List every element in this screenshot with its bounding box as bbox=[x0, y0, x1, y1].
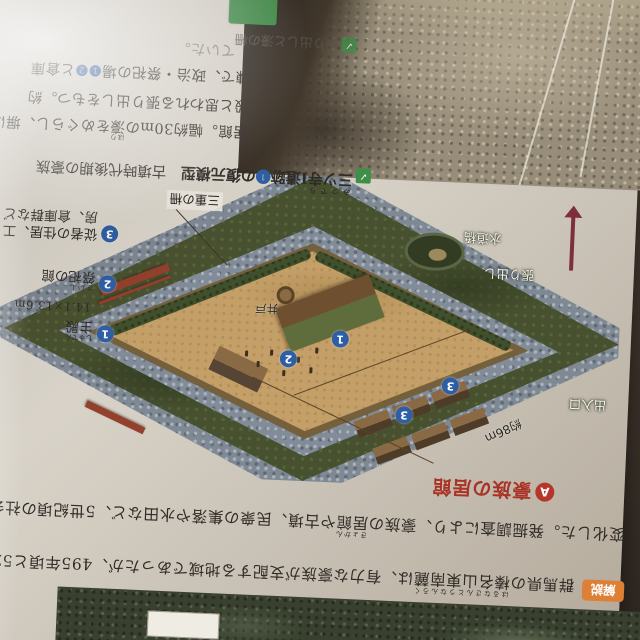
figure-marker-icon: ✓ bbox=[341, 37, 357, 53]
excavation-photo bbox=[238, 0, 640, 191]
legend-label-3: 従者の住居、工房、倉庫群など bbox=[0, 203, 98, 242]
fence-label: 三重の柵 bbox=[166, 190, 223, 211]
person-figure bbox=[270, 350, 273, 356]
green-prompt-box bbox=[228, 0, 277, 25]
photo-label-box bbox=[147, 610, 220, 639]
person-figure bbox=[282, 370, 285, 376]
legend-item-2: 2 祭祀さいしの館 bbox=[41, 265, 117, 292]
model-caption-line-5: ていた。 bbox=[175, 38, 235, 62]
legend-num-2: 2 bbox=[99, 275, 117, 293]
legend-label-1: 主殿しゅでん bbox=[64, 317, 93, 342]
model-caption-bold: 三ツ寺みつでらⅠ遺跡❶の復元模型 bbox=[180, 163, 353, 188]
scale-label: 約86m bbox=[482, 415, 524, 447]
survey-line bbox=[518, 0, 580, 186]
projection-label: 張り出し bbox=[483, 265, 534, 286]
legend-item-3: 3 従者の住居、工房、倉庫群など bbox=[0, 203, 119, 242]
model-caption-line-4: 棟で、政治・祭祀の場❶❷と倉庫 bbox=[30, 58, 251, 89]
well-label: 井戸 bbox=[255, 300, 279, 317]
person-figure bbox=[309, 367, 312, 373]
book-photo: 解説 群馬県の榛名山東南麓はるなさんとうなんろくは、有力な豪族が支配する地域であ… bbox=[0, 0, 640, 640]
person-figure bbox=[315, 347, 318, 353]
legend-num-1: 1 bbox=[96, 325, 114, 343]
legend-item-1: 1 主殿しゅでん bbox=[64, 317, 114, 343]
survey-line bbox=[579, 0, 619, 177]
model-caption-lead: 古墳時代後期の豪族 bbox=[36, 157, 182, 179]
reference-arrow-head bbox=[564, 205, 583, 218]
legend-num-3: 3 bbox=[101, 225, 119, 243]
person-figure bbox=[245, 350, 248, 356]
person-figure bbox=[256, 361, 259, 367]
aqueduct-label: 水道橋 bbox=[463, 229, 501, 250]
model-caption-line-3: 殿と思われる張り出しをもつ。約 bbox=[27, 87, 249, 118]
excavation-trench bbox=[238, 0, 410, 191]
textbook-page: 解説 群馬県の榛名山東南麓はるなさんとうなんろくは、有力な豪族が支配する地域であ… bbox=[0, 0, 640, 640]
page-layout: 解説 群馬県の榛名山東南麓はるなさんとうなんろくは、有力な豪族が支配する地域であ… bbox=[0, 0, 634, 640]
legend-size-1: 14.1×13.6m bbox=[14, 295, 91, 315]
explanation-badge: 解説 bbox=[582, 579, 625, 602]
entrance-label: 出入口 bbox=[568, 396, 606, 417]
legend-label-2: 祭祀さいしの館 bbox=[41, 265, 96, 291]
person-figure bbox=[297, 357, 300, 363]
figure-marker-icon: ✓ bbox=[356, 168, 372, 184]
reference-arrow bbox=[569, 216, 575, 271]
